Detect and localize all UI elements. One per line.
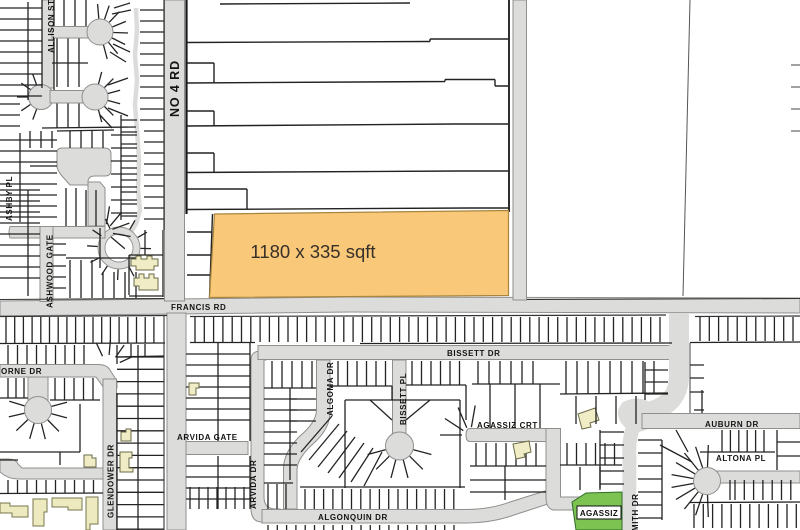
svg-text:ARVIDA DR: ARVIDA DR xyxy=(249,460,258,509)
svg-text:NO 4 RD: NO 4 RD xyxy=(168,60,182,117)
svg-text:ARVIDA GATE: ARVIDA GATE xyxy=(177,433,238,442)
svg-text:ALLISON ST: ALLISON ST xyxy=(47,0,56,53)
svg-text:ALGONQUIN DR: ALGONQUIN DR xyxy=(318,513,388,522)
svg-text:ORNE DR: ORNE DR xyxy=(1,367,42,376)
svg-text:ALTONA PL: ALTONA PL xyxy=(716,454,766,463)
svg-text:AGASSIZ CRT: AGASSIZ CRT xyxy=(477,421,538,430)
svg-text:FRANCIS RD: FRANCIS RD xyxy=(171,303,226,312)
svg-text:BISSETT DR: BISSETT DR xyxy=(447,349,501,358)
svg-text:AGASSIZ: AGASSIZ xyxy=(580,509,618,518)
svg-text:ASHBY PL: ASHBY PL xyxy=(5,176,14,221)
svg-text:ASHWOOD GATE: ASHWOOD GATE xyxy=(46,234,55,308)
svg-text:GLENDOWER DR: GLENDOWER DR xyxy=(107,444,116,518)
svg-text:ALGOMA DR: ALGOMA DR xyxy=(326,362,335,416)
svg-text:SMITH DR: SMITH DR xyxy=(631,494,640,530)
svg-text:AUBURN DR: AUBURN DR xyxy=(705,420,759,429)
svg-text:BISSETT PL: BISSETT PL xyxy=(399,373,408,425)
svg-text:1180 x 335 sqft: 1180 x 335 sqft xyxy=(250,241,375,262)
